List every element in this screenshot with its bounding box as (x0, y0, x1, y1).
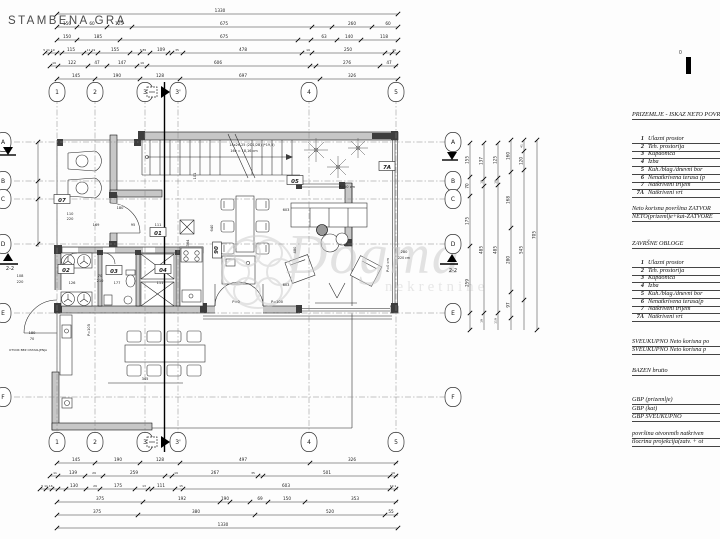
grid-bubble-label: 5 (394, 89, 398, 96)
dimension-label: 190 (113, 73, 121, 78)
dimension-label: 3 85 (140, 48, 147, 52)
grid-bubble-label: 4 (307, 439, 311, 446)
page-title: STAMBENA GRA (8, 15, 127, 27)
wc-fixtures (104, 270, 135, 305)
room-label-text: 7A (383, 165, 391, 171)
dimension-label: 47 (94, 60, 100, 65)
grid-bubble-label: B (451, 178, 455, 185)
grid-bubble-label: 3 (143, 439, 147, 446)
dimension-label: 155 (111, 47, 119, 52)
room-label-text: 02 (62, 268, 70, 274)
dimension-label: 675 (220, 21, 228, 26)
dimension-label: 35 (175, 48, 179, 52)
dimension-label: 280 (506, 256, 511, 264)
legend-row-text: Ulazni prostor (648, 135, 684, 142)
bathroom-fixtures (61, 253, 92, 306)
finishes-heading: ZAVRŠNE OBLOGE (632, 240, 720, 249)
room-label-03: 03 (106, 266, 122, 276)
floor-plan-svg: Dogmanekretnine1330150601256752606015018… (0, 0, 720, 539)
legend-row-text: Kupaonica (648, 274, 675, 281)
terrace-outline (57, 313, 392, 428)
dimension-label: 326 (348, 73, 356, 78)
dimension-label: 19 (140, 61, 144, 65)
legend-row-text: Ulazni prostor (648, 259, 684, 266)
annotation-text: P=0 (232, 300, 240, 304)
dimension-label: 497 (239, 457, 247, 462)
grand-total-row: SVEUKUPNO Neto korisna p (632, 346, 720, 355)
legend-row-number: 7A (632, 189, 644, 197)
dimension-label: 19 (391, 471, 395, 475)
legend-row-text: Natkriveni trijem (648, 181, 690, 188)
dimension-label: 168 (506, 196, 511, 204)
dimension-label: 5 11 19 (43, 48, 55, 52)
annotation-text: 345 (142, 377, 149, 381)
dimension-label: 150 (63, 34, 71, 39)
dimension-label: 155 (465, 156, 470, 164)
dimension-label: 145 (72, 457, 80, 462)
grid-bubble-label: E (1, 310, 5, 317)
annotation-text: 603 (283, 208, 290, 212)
grid-bubble-label: C (1, 196, 5, 203)
dimension-label: 190 (221, 496, 229, 501)
annotation-text: 177 (114, 281, 121, 285)
grid-bubble-label: 2 (93, 89, 97, 96)
dimension-label: 1330 (215, 8, 226, 13)
dimension-label: 47 (386, 60, 392, 65)
annotation-text: 70 (30, 337, 35, 341)
lounge-chairs (68, 151, 101, 198)
room-label-text: 03 (110, 269, 118, 275)
dimension-label: 19 (306, 48, 310, 52)
gbp-row: GBP (prizemlje) (632, 396, 720, 405)
annotation-text: 108 (17, 274, 25, 278)
dimension-label: 19 (174, 471, 178, 475)
annotation-text: P=105 (87, 324, 91, 336)
dimension-label: 520 (326, 509, 334, 514)
dimension-label: 111 (157, 483, 165, 488)
room-label-07: 07 (54, 195, 70, 205)
annotation-text: 364 (186, 239, 190, 247)
legend-row-text: Izba (648, 282, 659, 289)
watermark-word: Dogma (286, 224, 462, 286)
annotation-text: 2-2 (449, 268, 457, 274)
dimension-label: 55 (388, 509, 394, 514)
room-label-text: 05 (291, 179, 299, 185)
dimension-label: 375 (93, 509, 101, 514)
neto-total-row: NETO(prizemlje+kat-ZATVORE (632, 213, 720, 222)
room-label-02: 02 (58, 265, 74, 275)
dimension-label: 267 (211, 470, 219, 475)
dimension-label: 128 (156, 457, 164, 462)
dimension-label: 147 (118, 60, 126, 65)
annotation-text: P=100 (271, 300, 284, 304)
dimension-label: 5 11 16 (41, 484, 53, 488)
annotation-text: 14x26,25 (2D1/2B) (*19,5) (229, 143, 275, 147)
dimension-label: 97 (506, 302, 511, 308)
dimension-label: 603 (282, 483, 290, 488)
storage-room (141, 254, 174, 306)
grid-bubble-label: 5 (394, 439, 398, 446)
section-arrow-up (3, 253, 13, 261)
grid-bubble-label: F (1, 394, 5, 401)
grid-bubble-label: D (451, 241, 456, 248)
annotation-text: 180 (117, 206, 125, 210)
dimension-label: 19 (480, 180, 484, 184)
dimension-label: 380 (192, 509, 200, 514)
tree (348, 138, 368, 158)
annotation-text: OTVOR BEZ OSTAKLJENJA (9, 348, 48, 352)
legend-row-text: Teh. prostorija (648, 267, 684, 274)
dimension-label: 128 (156, 73, 164, 78)
dimension-label: 276 (343, 60, 351, 65)
annotation-text: 70 (98, 274, 103, 278)
legend-row-text: površina otvorenih natkriven (632, 430, 704, 437)
footer-row: tlocrtna projekcija(zatv. + ot (632, 438, 720, 447)
dimension-label: 120 (519, 157, 524, 165)
tree (304, 138, 328, 162)
room-label-04: 04 (155, 265, 171, 275)
annotation-text: 280 (401, 250, 409, 254)
dimension-label: 11 (53, 471, 57, 475)
dimension-label: 109 (157, 47, 165, 52)
net-area-row-7A: 7ANatkriveni vrt (632, 189, 720, 198)
scale-zero-label: 0 (679, 50, 682, 56)
annotation-text: 220 (17, 280, 25, 284)
dimension-label: 175 (465, 217, 470, 225)
legend-row-text: BAZEN brutto (632, 367, 668, 374)
annotation-text: P=50 cm (339, 185, 356, 189)
window-lintel (372, 133, 394, 139)
legend-row-text: Izba (648, 158, 659, 165)
dimension-label: 259 (130, 470, 138, 475)
grid-bubble-label: 2 (93, 439, 97, 446)
annotation-text: 110 (67, 212, 75, 216)
dimension-label: 375 (96, 496, 104, 501)
dimension-label: 260 (348, 21, 356, 26)
dimension-label: 63 (321, 34, 327, 39)
annotation-text: 220 cm (398, 256, 410, 260)
dimension-label: 326 (348, 457, 356, 462)
dimension-label: 35 (251, 471, 255, 475)
grid-bubble-label: 1 (55, 89, 59, 96)
grid-bubble-label: 3 (143, 89, 147, 96)
dimension-label: 501 (323, 470, 331, 475)
dimension-label: 485 (479, 246, 484, 254)
dimension-label: 41 (520, 144, 524, 148)
dimension-label: 19 1 (390, 484, 397, 488)
legend-row-text: Nenatkrivena terasa (p (648, 174, 705, 181)
dimension-label: 119 (494, 318, 498, 324)
dimension-label: 485 (493, 246, 498, 254)
grid-bubble-label: 4 (307, 89, 311, 96)
pool-row: BAZEN brutto (632, 367, 720, 376)
tv-bench (315, 283, 357, 303)
dimension-label: 13 (142, 484, 146, 488)
legend-row-text: GBP (kat) (632, 405, 657, 412)
dimension-label: 145 (72, 73, 80, 78)
dimension-label: 697 (239, 73, 247, 78)
annotation-text: 95 (131, 223, 136, 227)
section-arrow-right (161, 436, 170, 448)
grid-bubble-label: F (451, 394, 455, 401)
legend-row-text: Kupaonica (648, 150, 675, 157)
legend-panel: 0 PRIZEMLJE - ISKAZ NETO POVR1Ulazni pro… (630, 0, 720, 539)
annotation-text: P=0 cm (386, 257, 390, 272)
legend-row-text: ZAVRŠNE OBLOGE (632, 240, 683, 247)
dimension-label: 175 (114, 483, 122, 488)
dimension-label: 160 (506, 152, 511, 160)
tree-symbols (304, 138, 368, 178)
annotation-text: 603 (283, 283, 290, 287)
annotation-text: 180 (29, 331, 37, 335)
annotation-text: 2-2 (6, 266, 14, 272)
annotation-text: 220 (67, 217, 75, 221)
dimension-label: 353 (351, 496, 359, 501)
dimension-label: 118 (380, 34, 388, 39)
dimension-label: 15 (179, 484, 183, 488)
legend-row-text: Neto korisna površina ZATVOR (632, 205, 711, 212)
grid-bubble-label: C (451, 196, 455, 203)
dimension-label: 115 (67, 47, 75, 52)
legend-row-text: NETO(prizemlje+kat-ZATVORE (632, 213, 713, 220)
annotation-text: 210 (97, 279, 105, 283)
legend-row-text: tlocrtna projekcija(zatv. + ot (632, 438, 703, 445)
legend-row-text: Kuh./blag./dnevni bor (648, 290, 702, 297)
room-label-text: 01 (154, 231, 162, 237)
legend-row-text: PRIZEMLJE - ISKAZ NETO POVR (632, 111, 720, 118)
dimension-label: 705 (532, 231, 537, 239)
dimension-label: 1330 (218, 522, 229, 527)
room-label-text: 07 (58, 198, 66, 204)
legend-row-text: Natkriveni vrt (648, 189, 683, 196)
section-arrow-down (447, 152, 457, 160)
net-area-heading: PRIZEMLJE - ISKAZ NETO POVR (632, 111, 720, 120)
dimension-label: 606 (214, 60, 222, 65)
grid-bubble-label: 3' (175, 439, 181, 446)
dimension-label: 60 (385, 21, 391, 26)
grid-bubble-label: D (1, 241, 6, 248)
dimension-label: 545 (519, 246, 524, 254)
dining-set (221, 196, 269, 254)
dimension-label: 29 (92, 471, 96, 475)
dimension-label: 192 (178, 496, 186, 501)
room-label-06: 06 (212, 242, 222, 258)
dimension-label: 190 (114, 457, 122, 462)
annotation-text: 111 (155, 223, 162, 227)
legend-row-text: Teh. prostorija (648, 143, 684, 150)
dimension-label: 478 (239, 47, 247, 52)
dimension-label: 19 (392, 48, 396, 52)
annotation-text: 126 (69, 281, 77, 285)
room-label-text: 04 (159, 268, 167, 274)
annotation-text: 111 (157, 281, 164, 285)
grid-bubble-label: E (451, 310, 455, 317)
dimension-label: 29 (93, 484, 97, 488)
dimension-label: 140 (345, 34, 353, 39)
terrace-furniture (60, 315, 205, 408)
room-label-01: 01 (150, 228, 166, 238)
outdoor-counter (60, 315, 72, 375)
legend-row-text: GBP (prizemlje) (632, 396, 673, 403)
staircase (142, 134, 300, 178)
annotation-text: 169 (93, 223, 101, 227)
grid-bubble-label: B (1, 178, 5, 185)
dimension-label: 259 (465, 279, 470, 287)
legend-row-text: Kuh./blag./dnevni bor (648, 166, 702, 173)
legend-row-text: Natkriveni trijem (648, 305, 690, 312)
dimension-label: 11 19 (87, 48, 96, 52)
legend-row-text: SVEUKUPNO Neto korisna p (632, 346, 706, 353)
grid-bubble-label: 3' (175, 89, 181, 96)
legend-row-text: GBP SVEUKUPNO (632, 413, 682, 420)
room-label-7A: 7A (379, 162, 395, 172)
scale-bar (686, 57, 691, 74)
dimension-label: 250 (344, 47, 352, 52)
dimension-label: 122 (68, 60, 76, 65)
dimension-label: 137 (479, 157, 484, 165)
room-label-text: 06 (212, 246, 218, 254)
dimension-label: 675 (220, 34, 228, 39)
legend-row-text: Natkriveni vrt (648, 313, 683, 320)
legend-row-text: Nenatkrivena terasa(p (648, 298, 704, 305)
grid-bubble-label: 1 (55, 439, 59, 446)
dimension-label: 19 (480, 319, 484, 323)
dimension-label: 130 (70, 483, 78, 488)
dimension-label: 19 (52, 61, 56, 65)
annotation-text: 640 (210, 224, 214, 232)
watermark-subword: nekretnine (385, 279, 488, 295)
annotation-text: 16v = 18,16 cm (230, 149, 258, 153)
floor-plan-sheet: Dogmanekretnine1330150601256752606015018… (0, 0, 720, 539)
legend-row-number: 7A (632, 313, 644, 321)
dimension-label: 125 (493, 156, 498, 164)
dimension-label: 19 (494, 180, 498, 184)
annotation-text: 480 (293, 246, 297, 254)
dimension-label: 69 (257, 496, 263, 501)
annotation-text: 101 (193, 173, 197, 180)
tree (327, 156, 349, 178)
room-label-05: 05 (287, 176, 303, 186)
dimension-label: 70 (465, 183, 470, 189)
section-arrow-right (161, 86, 170, 98)
dimension-label: 150 (283, 496, 291, 501)
finish-row-7A: 7ANatkriveni vrt (632, 313, 720, 322)
legend-row-text: SVEUKUPNO Neto korisna po (632, 338, 709, 345)
gbp-row: GBP SVEUKUPNO (632, 413, 720, 422)
dimension-label: 185 (94, 34, 102, 39)
dimension-label: 139 (69, 470, 77, 475)
